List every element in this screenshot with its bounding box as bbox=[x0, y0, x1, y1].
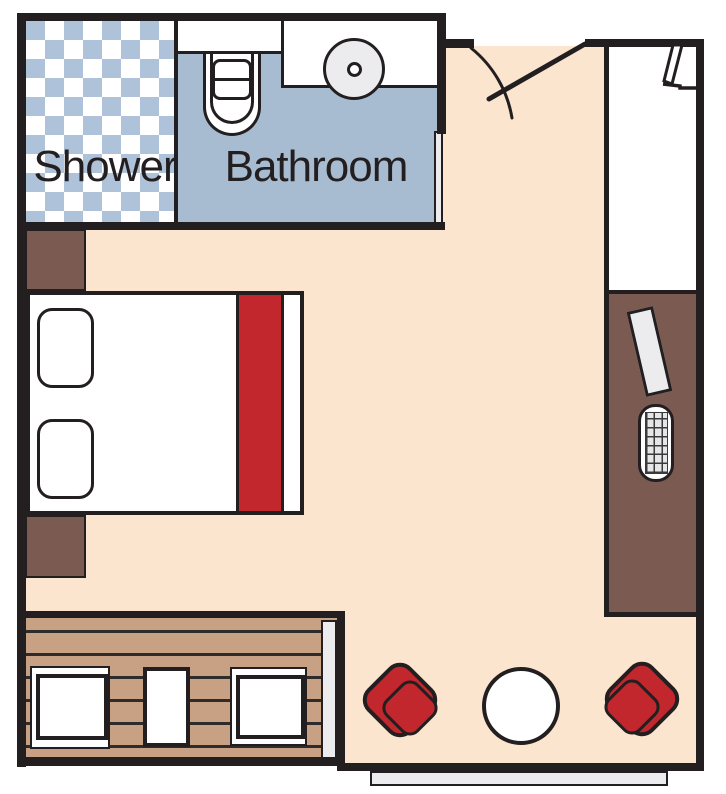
nightstand-bottom bbox=[25, 515, 86, 578]
round-side-table bbox=[482, 667, 560, 745]
wall-veranda-bottom bbox=[17, 757, 337, 766]
deck-plank bbox=[26, 653, 337, 656]
wall-veranda-right bbox=[337, 611, 345, 768]
wall-veranda-top bbox=[17, 611, 345, 618]
shower-label: Shower bbox=[33, 142, 176, 192]
floor-plan: Shower Bathroom bbox=[0, 0, 726, 794]
toilet-counter bbox=[178, 21, 281, 54]
pillow bbox=[37, 308, 94, 388]
wall-left bbox=[17, 13, 26, 767]
sink-drain bbox=[347, 62, 362, 77]
bathroom-door bbox=[434, 131, 443, 229]
wall-bottom bbox=[337, 763, 704, 771]
wall-corridor bbox=[604, 46, 609, 616]
veranda-table bbox=[143, 667, 190, 747]
wall-wardrobe-bottom bbox=[604, 612, 704, 617]
nightstand-top bbox=[25, 229, 86, 291]
pillow bbox=[37, 419, 94, 499]
veranda-chair bbox=[236, 675, 305, 739]
wall-entry-jamb bbox=[437, 39, 474, 48]
corridor-area bbox=[609, 46, 697, 294]
sliding-glass-door bbox=[321, 620, 337, 759]
wall-bathroom-bottom bbox=[17, 222, 445, 230]
wall-wardrobe-top bbox=[609, 290, 697, 294]
wall-right bbox=[696, 39, 704, 771]
deck-plank bbox=[26, 630, 337, 633]
toilet-tank-line bbox=[212, 78, 252, 81]
wall-top-bathroom bbox=[17, 13, 445, 21]
exterior-window bbox=[370, 771, 668, 786]
wall-top-right bbox=[585, 39, 704, 47]
bathroom-label: Bathroom bbox=[225, 142, 408, 192]
bed-runner bbox=[236, 295, 284, 511]
wall-bathroom-right bbox=[437, 13, 446, 134]
veranda-chair bbox=[36, 674, 108, 740]
luggage-rack-grid bbox=[645, 412, 668, 474]
